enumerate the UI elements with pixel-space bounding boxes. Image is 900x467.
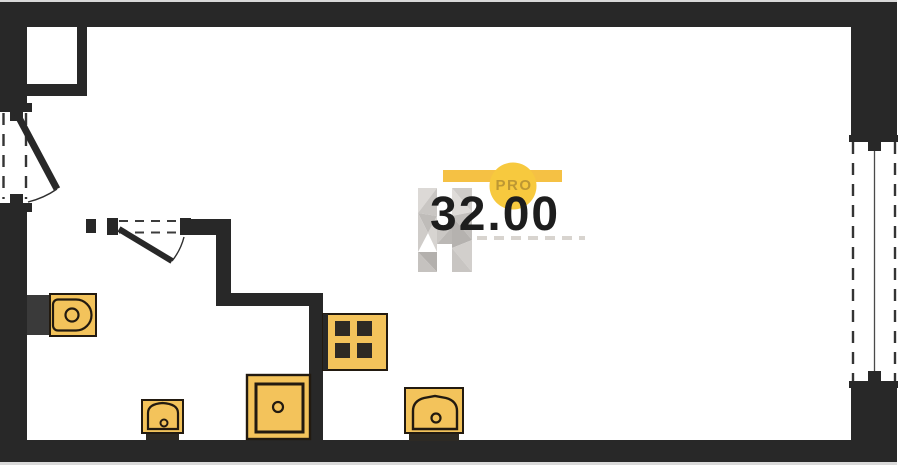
bottom-edge-highlight [0, 462, 897, 465]
bath-door-jamb-right [180, 218, 191, 235]
window-sill-top [849, 135, 898, 142]
window [849, 135, 898, 388]
bathroom-door-swing-arc [172, 237, 184, 261]
burner-3 [335, 343, 350, 358]
window-sill-bottom [849, 381, 898, 388]
window-handle-bottom [868, 371, 881, 381]
duct-shaft [27, 25, 87, 96]
top-edge-highlight [0, 0, 897, 2]
toilet-tank [27, 295, 50, 335]
entrance-sill [0, 203, 32, 212]
entrance-hinge-bottom [10, 194, 23, 203]
shower-tray [247, 375, 310, 439]
wall-bottom [0, 440, 897, 462]
kitchen-sink [405, 388, 463, 441]
bathroom-washbasin [142, 400, 183, 440]
fixtures [27, 294, 463, 441]
entrance-door-leaf [17, 114, 57, 189]
bath-door-jamb-left [107, 218, 118, 235]
burner-4 [357, 343, 372, 358]
cooktop-body [323, 314, 387, 370]
bathroom-door [119, 221, 184, 261]
toilet [27, 294, 96, 336]
bath-wall-top [191, 219, 231, 235]
bath-wall-stub [86, 219, 96, 233]
floor-plan-screenshot: PRO 32.00 [0, 0, 900, 467]
cooktop [323, 314, 387, 370]
burner-2 [357, 321, 372, 336]
wall-left-upper [0, 2, 27, 103]
bathroom-door-leaf [119, 229, 172, 261]
window-handle-top [868, 141, 881, 151]
cooktop-wall-strip [323, 314, 328, 370]
wall-right-upper [851, 2, 897, 135]
wall-left-lower [0, 212, 27, 462]
entrance-lintel [0, 103, 32, 112]
bath-wall-horizontal [216, 293, 323, 306]
burner-1 [335, 321, 350, 336]
bath-wall-vertical-upper [216, 233, 231, 296]
shaft-wall-bottom [27, 84, 87, 96]
wall-top [0, 2, 855, 27]
entrance-door-swing-arc [28, 189, 57, 202]
entrance-door [0, 103, 57, 212]
area-value: 32.00 [430, 191, 560, 239]
